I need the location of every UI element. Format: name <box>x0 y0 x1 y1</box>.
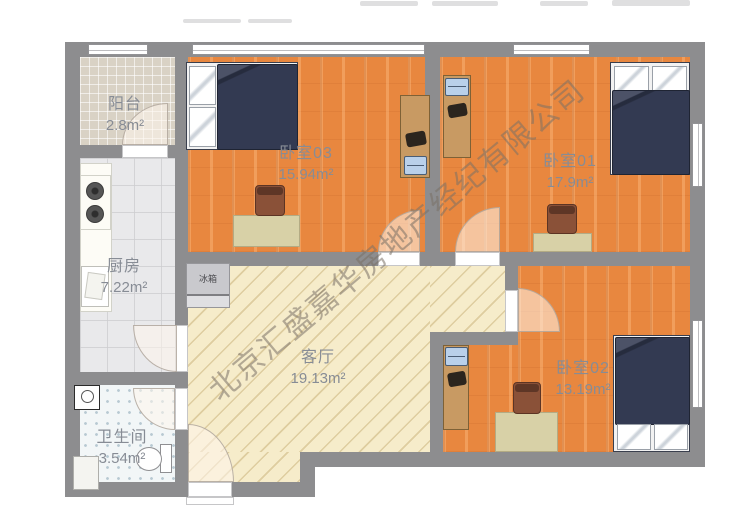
bedroom3-pillow <box>189 66 216 105</box>
bedroom2-door-threshold <box>505 290 518 332</box>
bedroom2-pillow <box>654 424 688 450</box>
wall-outer-bottom-right <box>300 452 705 467</box>
cropped-text-artifact <box>248 19 292 23</box>
bedroom1-duvet <box>612 90 690 175</box>
wall-living-right-lower <box>430 345 443 452</box>
bedroom1-chair <box>547 204 577 234</box>
bedroom2-pillow <box>617 424 651 450</box>
wall-bedroom2-left-upper <box>505 266 518 290</box>
bedroom2-chair <box>513 382 541 414</box>
fridge-door <box>187 294 229 307</box>
bedroom3-duvet <box>217 64 298 150</box>
window-bedroom1-right <box>692 123 703 187</box>
entry-door-outer-sill <box>186 497 234 505</box>
kitchen-sink-icon <box>81 266 109 307</box>
cropped-text-artifact <box>612 0 690 6</box>
cropped-text-artifact <box>540 1 588 6</box>
wall-corridor-bottom <box>430 332 518 345</box>
fridge: 冰箱 <box>186 263 230 308</box>
living-room-floor-corridor <box>430 266 505 332</box>
stove-burner-icon <box>86 205 104 223</box>
bedroom1-pillow <box>652 66 687 91</box>
stove-burner-icon <box>86 182 104 200</box>
toilet-icon <box>136 447 162 471</box>
balcony-door-threshold <box>122 145 168 158</box>
window-balcony <box>88 44 148 55</box>
bedroom2-duvet <box>615 337 690 425</box>
wall-outer-left <box>65 42 80 497</box>
bathroom-door-threshold <box>175 388 188 430</box>
cropped-text-artifact <box>432 1 498 6</box>
fridge-label: 冰箱 <box>199 274 217 284</box>
window-bedroom2-right <box>692 320 703 408</box>
window-bedroom3 <box>192 44 425 55</box>
washing-machine-icon <box>74 385 100 410</box>
bedroom1-table <box>533 233 592 252</box>
bathroom-sink-icon <box>73 456 99 490</box>
cropped-text-artifact <box>183 19 241 23</box>
cropped-text-artifact <box>360 1 418 6</box>
wall-kitchen-bathroom <box>80 372 175 385</box>
bedroom1-pillow <box>614 66 649 91</box>
entry-door-threshold <box>188 482 232 497</box>
bedroom3-door-threshold <box>378 252 420 266</box>
bedroom1-printer-icon <box>445 78 469 96</box>
wall-mid-horizontal <box>188 252 705 266</box>
bedroom1-door-threshold <box>455 252 500 266</box>
bedroom2-printer-icon <box>445 347 468 366</box>
bedroom3-table <box>233 215 300 247</box>
bedroom3-chair <box>255 185 285 216</box>
window-bedroom1-top <box>513 44 590 55</box>
bedroom3-printer-icon <box>404 156 427 175</box>
bedroom2-table <box>495 412 558 452</box>
floor-plan: 冰箱 阳台 2.8m² 厨房 7.22m² 卫生间 3.54m² 客厅 19.1… <box>0 0 745 519</box>
bedroom3-pillow <box>189 107 216 147</box>
